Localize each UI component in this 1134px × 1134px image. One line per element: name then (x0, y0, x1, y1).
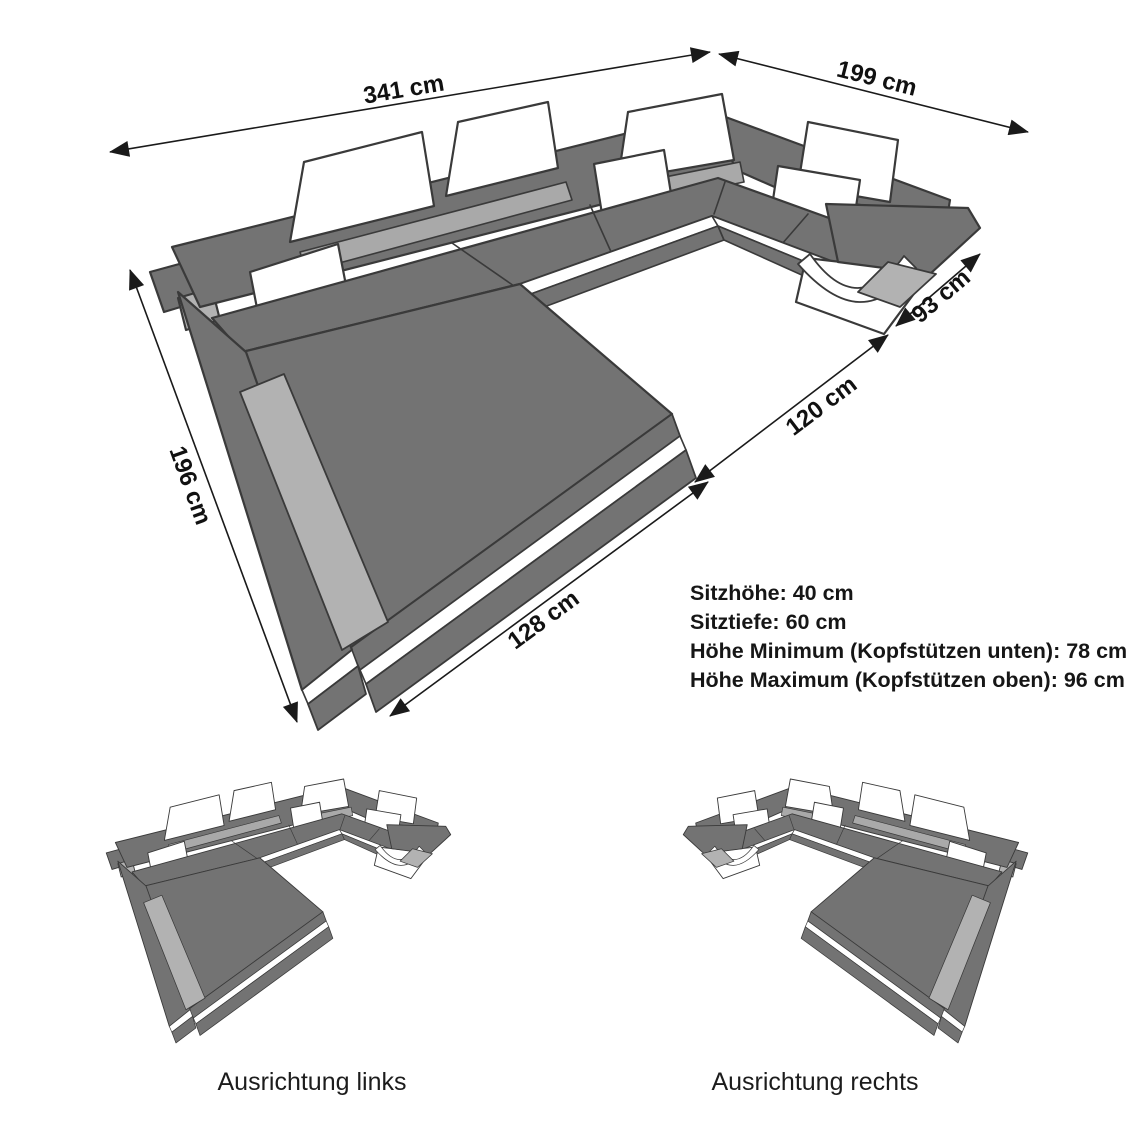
sofa-diagram-canvas: 341 cm 199 cm 93 cm 120 cm 196 cm 128 cm… (0, 0, 1134, 1134)
dimension-line-120 (695, 335, 888, 482)
dimension-label-left: 196 cm (163, 443, 216, 529)
dimension-label-inner: 120 cm (781, 371, 862, 442)
spec-height-max: Höhe Maximum (Kopfstützen oben): 96 cm (690, 668, 1125, 692)
sofa-diagram-main: 341 cm 199 cm 93 cm 120 cm 196 cm 128 cm… (110, 52, 1127, 730)
sofa-dimension-diagram-page: 341 cm 199 cm 93 cm 120 cm 196 cm 128 cm… (0, 0, 1134, 1134)
spec-text-block: Sitzhöhe: 40 cm Sitztiefe: 60 cm Höhe Mi… (690, 581, 1127, 692)
variant-right-caption: Ausrichtung rechts (711, 1068, 918, 1096)
sofa-variant-left (106, 779, 450, 1043)
variant-left-caption: Ausrichtung links (218, 1068, 407, 1096)
spec-seat-depth: Sitztiefe: 60 cm (690, 610, 847, 634)
sofa-variant-right (683, 779, 1027, 1043)
spec-seat-height: Sitzhöhe: 40 cm (690, 581, 854, 605)
spec-height-min: Höhe Minimum (Kopfstützen unten): 78 cm (690, 639, 1127, 663)
dimension-label-right: 199 cm (834, 56, 920, 102)
